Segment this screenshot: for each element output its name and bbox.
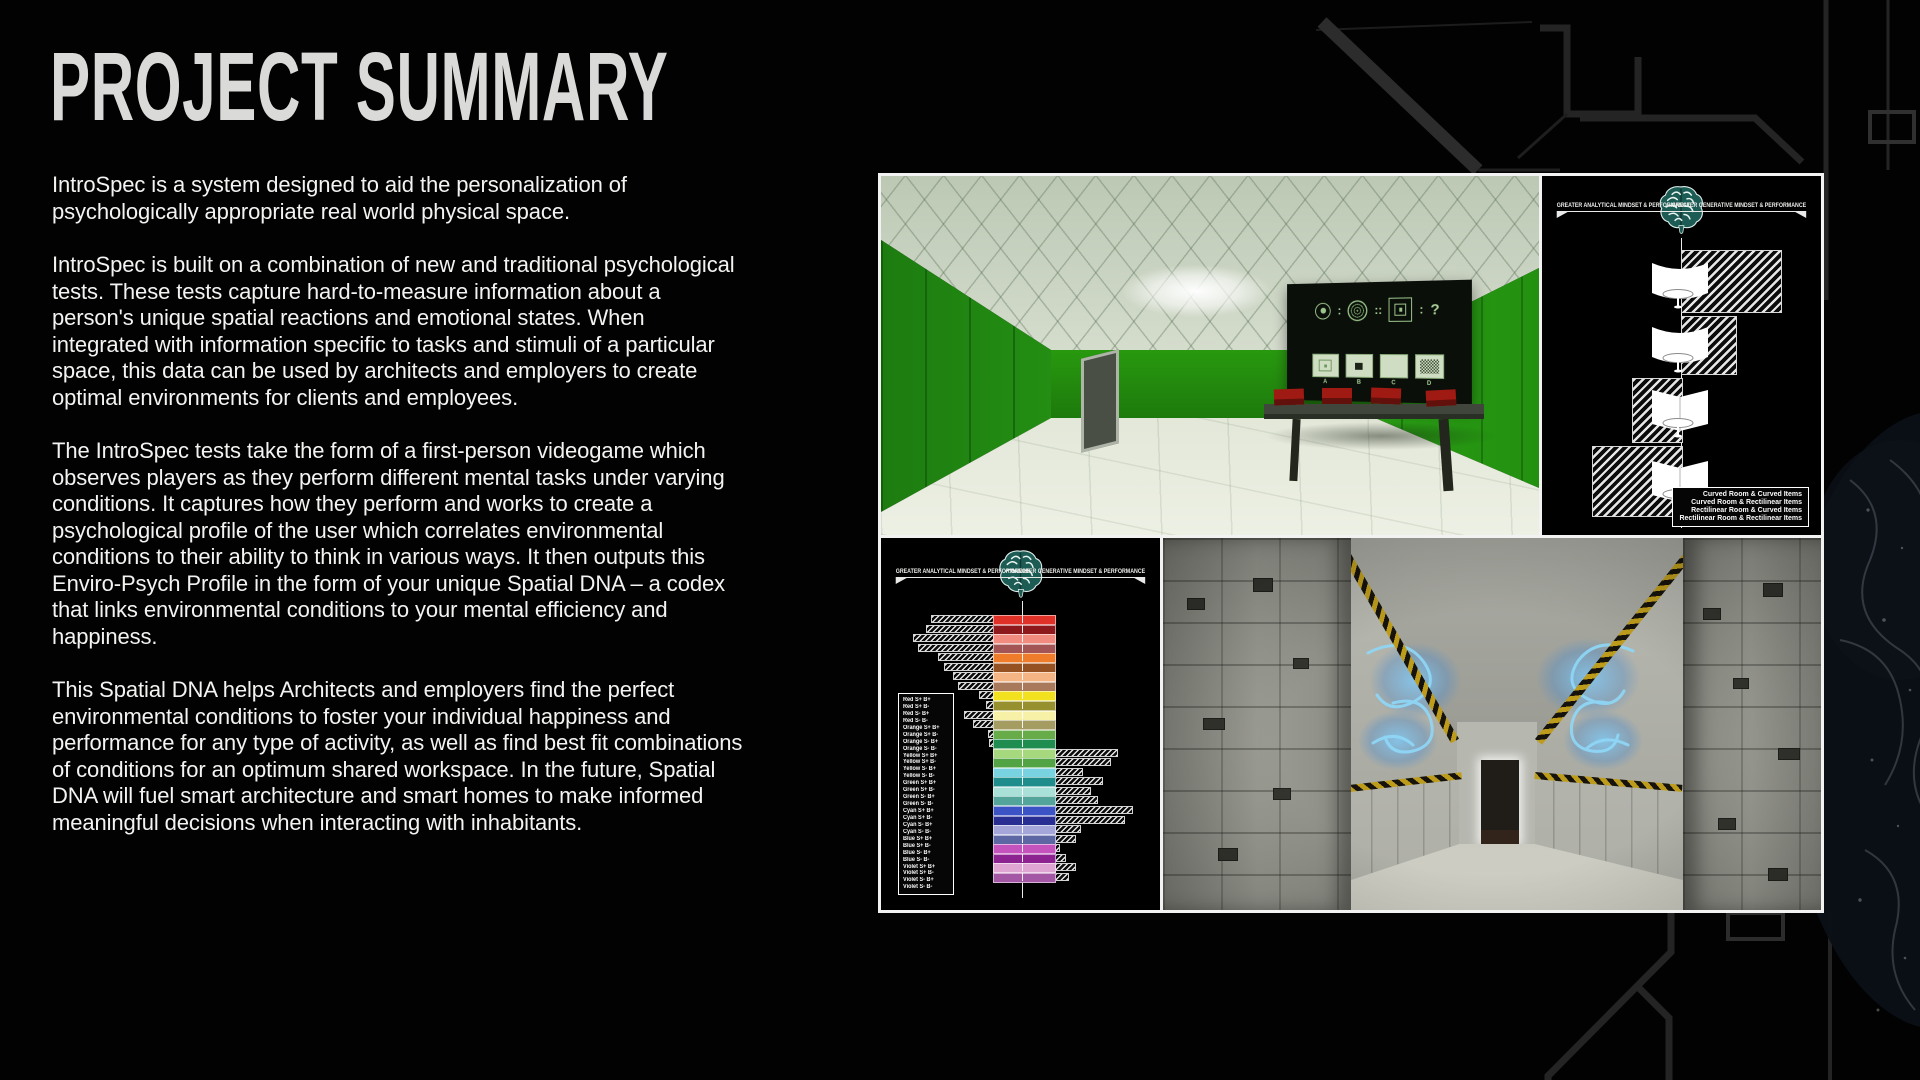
chart-legend-item: Red S- B- <box>903 718 945 725</box>
dna-center-tick <box>1022 730 1023 738</box>
table-shadow <box>1266 422 1496 450</box>
chart-legend-item: Orange S+ B+ <box>903 725 945 732</box>
chart-legend-item: Orange S+ B- <box>903 732 945 739</box>
puzzle-separator: : <box>1419 303 1423 315</box>
dna-color-swatch <box>993 739 1056 749</box>
dna-color-swatch <box>993 634 1056 644</box>
chart-legend-item: Violet S+ B- <box>903 870 945 877</box>
dna-color-swatch <box>993 863 1056 873</box>
dna-bar-analytical <box>953 672 995 680</box>
dna-center-tick <box>1022 625 1023 633</box>
dna-center-tick <box>1022 816 1023 824</box>
rectilinear-room-icon <box>1648 386 1712 442</box>
chart-legend-item: Red S+ B+ <box>903 697 945 704</box>
dna-bar-analytical <box>958 682 995 690</box>
puzzle-option: D <box>1415 354 1444 387</box>
dna-color-swatch <box>993 787 1056 797</box>
dna-bar-generative <box>1054 796 1098 804</box>
chart-legend-item: Violet S- B+ <box>903 877 945 884</box>
elevator-door <box>1081 349 1119 452</box>
dna-color-swatch <box>993 672 1056 682</box>
dna-center-tick <box>1022 844 1023 852</box>
summary-paragraph: IntroSpec is a system designed to aid th… <box>52 172 744 225</box>
chart-legend-item: Green S- B+ <box>903 794 945 801</box>
puzzle-option-icon <box>1312 354 1339 378</box>
chart-legend-item: Green S+ B+ <box>903 780 945 787</box>
dna-color-swatch <box>993 711 1056 721</box>
chart-legend-item: Cyan S+ B- <box>903 815 945 822</box>
dna-bar-analytical <box>973 720 995 728</box>
answer-button <box>1274 388 1305 405</box>
puzzle-option: B <box>1345 354 1372 386</box>
answer-button <box>1371 387 1402 404</box>
dna-bar-generative <box>1054 768 1083 776</box>
ceiling-light <box>1096 256 1296 326</box>
puzzle-dotted-circle-icon <box>1348 300 1368 321</box>
dna-bar-analytical <box>964 711 995 719</box>
dna-center-tick <box>1022 835 1023 843</box>
puzzle-option-icon <box>1415 354 1444 379</box>
puzzle-option-icon <box>1345 354 1372 378</box>
green-test-room-render: : :: : ? ABCD <box>881 176 1539 535</box>
dna-color-swatch <box>993 816 1056 826</box>
puzzle-option: A <box>1312 354 1339 386</box>
summary-paragraph: The IntroSpec tests take the form of a f… <box>52 438 744 650</box>
dna-center-tick <box>1022 634 1023 642</box>
dna-center-tick <box>1022 787 1023 795</box>
puzzle-separator: : <box>1338 305 1342 317</box>
dna-bar-generative <box>1054 816 1125 824</box>
chart-legend-item: Green S+ B- <box>903 787 945 794</box>
dna-bar-generative <box>1054 777 1103 785</box>
chart-legend-item: Violet S+ B+ <box>903 864 945 871</box>
summary-paragraph: IntroSpec is built on a combination of n… <box>52 252 744 411</box>
dna-center-tick <box>1022 749 1023 757</box>
curved-room-icon <box>1648 321 1712 377</box>
dna-color-swatch <box>993 835 1056 845</box>
dna-color-swatch <box>993 663 1056 673</box>
puzzle-square-icon <box>1389 297 1413 322</box>
dna-color-swatch <box>993 691 1056 701</box>
dna-color-swatch <box>993 720 1056 730</box>
corridor-render <box>1163 538 1821 910</box>
dna-bar-analytical <box>926 625 995 633</box>
spatial-dna-chart: GREATER ANALYTICAL MINDSET & PERFORMANCE… <box>881 538 1160 910</box>
dna-bar-generative <box>1054 806 1133 814</box>
dna-color-swatch <box>993 873 1056 883</box>
dna-color-swatch <box>993 615 1056 625</box>
dna-center-tick <box>1022 663 1023 671</box>
curved-room-icon <box>1648 257 1712 313</box>
answer-button <box>1322 388 1352 404</box>
chart-legend-item: Blue S- B- <box>903 857 945 864</box>
room-preference-diagram: GREATER ANALYTICAL MINDSET & PERFORMANCE… <box>1542 176 1821 535</box>
corridor-vignette <box>1163 538 1821 910</box>
dna-center-tick <box>1022 873 1023 881</box>
puzzle-option: C <box>1379 354 1407 387</box>
chart-legend-item: Orange S- B+ <box>903 739 945 746</box>
puzzle-option-label: A <box>1323 379 1327 385</box>
dna-bar-generative <box>1054 873 1069 881</box>
puzzle-options-row: ABCD <box>1312 354 1444 388</box>
dna-bar-generative <box>1054 787 1091 795</box>
chart-legend-item: Cyan S+ B+ <box>903 808 945 815</box>
dna-center-tick <box>1022 672 1023 680</box>
chart-legend-item: Cyan S- B- <box>903 829 945 836</box>
chart-legend-item: Red S+ B- <box>903 704 945 711</box>
dna-center-tick <box>1022 806 1023 814</box>
dna-center-tick <box>1022 701 1023 709</box>
dna-center-tick <box>1022 739 1023 747</box>
puzzle-question-row: : :: : ? <box>1315 297 1439 323</box>
dna-color-swatch <box>993 825 1056 835</box>
dna-color-swatch <box>993 777 1056 787</box>
dna-bar-generative <box>1054 863 1076 871</box>
diagram-legend-item: Curved Room & Rectilinear Items <box>1679 499 1802 507</box>
puzzle-separator: :: <box>1374 304 1382 316</box>
chart-legend: Red S+ B+Red S+ B-Red S- B+Red S- B-Oran… <box>898 693 954 895</box>
dna-center-tick <box>1022 863 1023 871</box>
chart-legend-item: Yellow S- B- <box>903 773 945 780</box>
dna-bar-analytical <box>931 615 995 623</box>
dna-bar-generative <box>1054 758 1111 766</box>
dna-center-tick <box>1022 653 1023 661</box>
dna-center-tick <box>1022 854 1023 862</box>
dna-color-swatch <box>993 682 1056 692</box>
puzzle-question-mark: ? <box>1430 300 1439 318</box>
dna-bar-analytical <box>944 663 995 671</box>
dna-center-tick <box>1022 644 1023 652</box>
dna-center-tick <box>1022 758 1023 766</box>
chart-legend-item: Red S- B+ <box>903 711 945 718</box>
dna-color-swatch <box>993 768 1056 778</box>
dna-center-tick <box>1022 691 1023 699</box>
dna-color-swatch <box>993 854 1056 864</box>
summary-paragraph: This Spatial DNA helps Architects and em… <box>52 677 744 836</box>
dna-color-swatch <box>993 653 1056 663</box>
dna-bar-generative <box>1054 749 1118 757</box>
chart-legend-item: Blue S- B+ <box>903 850 945 857</box>
dna-bar-generative <box>1054 825 1081 833</box>
chart-legend-item: Cyan S- B+ <box>903 822 945 829</box>
dna-bar-analytical <box>918 644 995 652</box>
puzzle-screen: : :: : ? ABCD <box>1287 280 1472 405</box>
chart-legend-item: Yellow S+ B+ <box>903 753 945 760</box>
summary-text: IntroSpec is a system designed to aid th… <box>52 172 744 863</box>
diagram-legend-item: Curved Room & Curved Items <box>1679 491 1802 499</box>
dna-center-tick <box>1022 768 1023 776</box>
project-summary-slide: PROJECT SUMMARY IntroSpec is a system de… <box>0 0 1920 1080</box>
project-collage: : :: : ? ABCD GREATER ANALYTIC <box>878 173 1824 913</box>
chart-legend-item: Yellow S+ B- <box>903 759 945 766</box>
diagram-legend: Curved Room & Curved ItemsCurved Room & … <box>1672 487 1809 527</box>
dna-center-tick <box>1022 711 1023 719</box>
dna-center-tick <box>1022 825 1023 833</box>
puzzle-circle-icon <box>1315 302 1331 319</box>
dna-center-tick <box>1022 615 1023 623</box>
puzzle-option-icon <box>1379 354 1407 378</box>
dna-bar-generative <box>1054 835 1076 843</box>
page-title: PROJECT SUMMARY <box>50 38 669 135</box>
dna-color-swatch <box>993 749 1056 759</box>
chart-legend-item: Green S- B- <box>903 801 945 808</box>
dna-color-swatch <box>993 806 1056 816</box>
dna-color-swatch <box>993 758 1056 768</box>
dna-center-tick <box>1022 796 1023 804</box>
dna-center-tick <box>1022 682 1023 690</box>
dna-color-swatch <box>993 730 1056 740</box>
answer-table <box>1264 404 1484 414</box>
dna-bar-analytical <box>938 653 995 661</box>
puzzle-option-label: B <box>1357 380 1361 386</box>
dna-bar-analytical <box>913 634 995 642</box>
dna-center-tick <box>1022 777 1023 785</box>
chart-legend-item: Violet S- B- <box>903 884 945 891</box>
diagram-legend-item: Rectilinear Room & Curved Items <box>1679 507 1802 515</box>
puzzle-option-label: C <box>1391 380 1395 386</box>
chart-legend-item: Yellow S- B+ <box>903 766 945 773</box>
chart-legend-item: Blue S+ B+ <box>903 836 945 843</box>
dna-color-swatch <box>993 625 1056 635</box>
dna-color-swatch <box>993 644 1056 654</box>
dna-color-swatch <box>993 844 1056 854</box>
diagram-rows <box>1542 176 1821 535</box>
chart-legend-item: Blue S+ B- <box>903 843 945 850</box>
puzzle-option-label: D <box>1427 381 1431 387</box>
answer-button <box>1426 389 1457 407</box>
dna-center-tick <box>1022 720 1023 728</box>
diagram-legend-item: Rectilinear Room & Rectilinear Items <box>1679 515 1802 523</box>
dna-color-swatch <box>993 701 1056 711</box>
chart-legend-item: Orange S- B- <box>903 746 945 753</box>
dna-color-swatch <box>993 796 1056 806</box>
